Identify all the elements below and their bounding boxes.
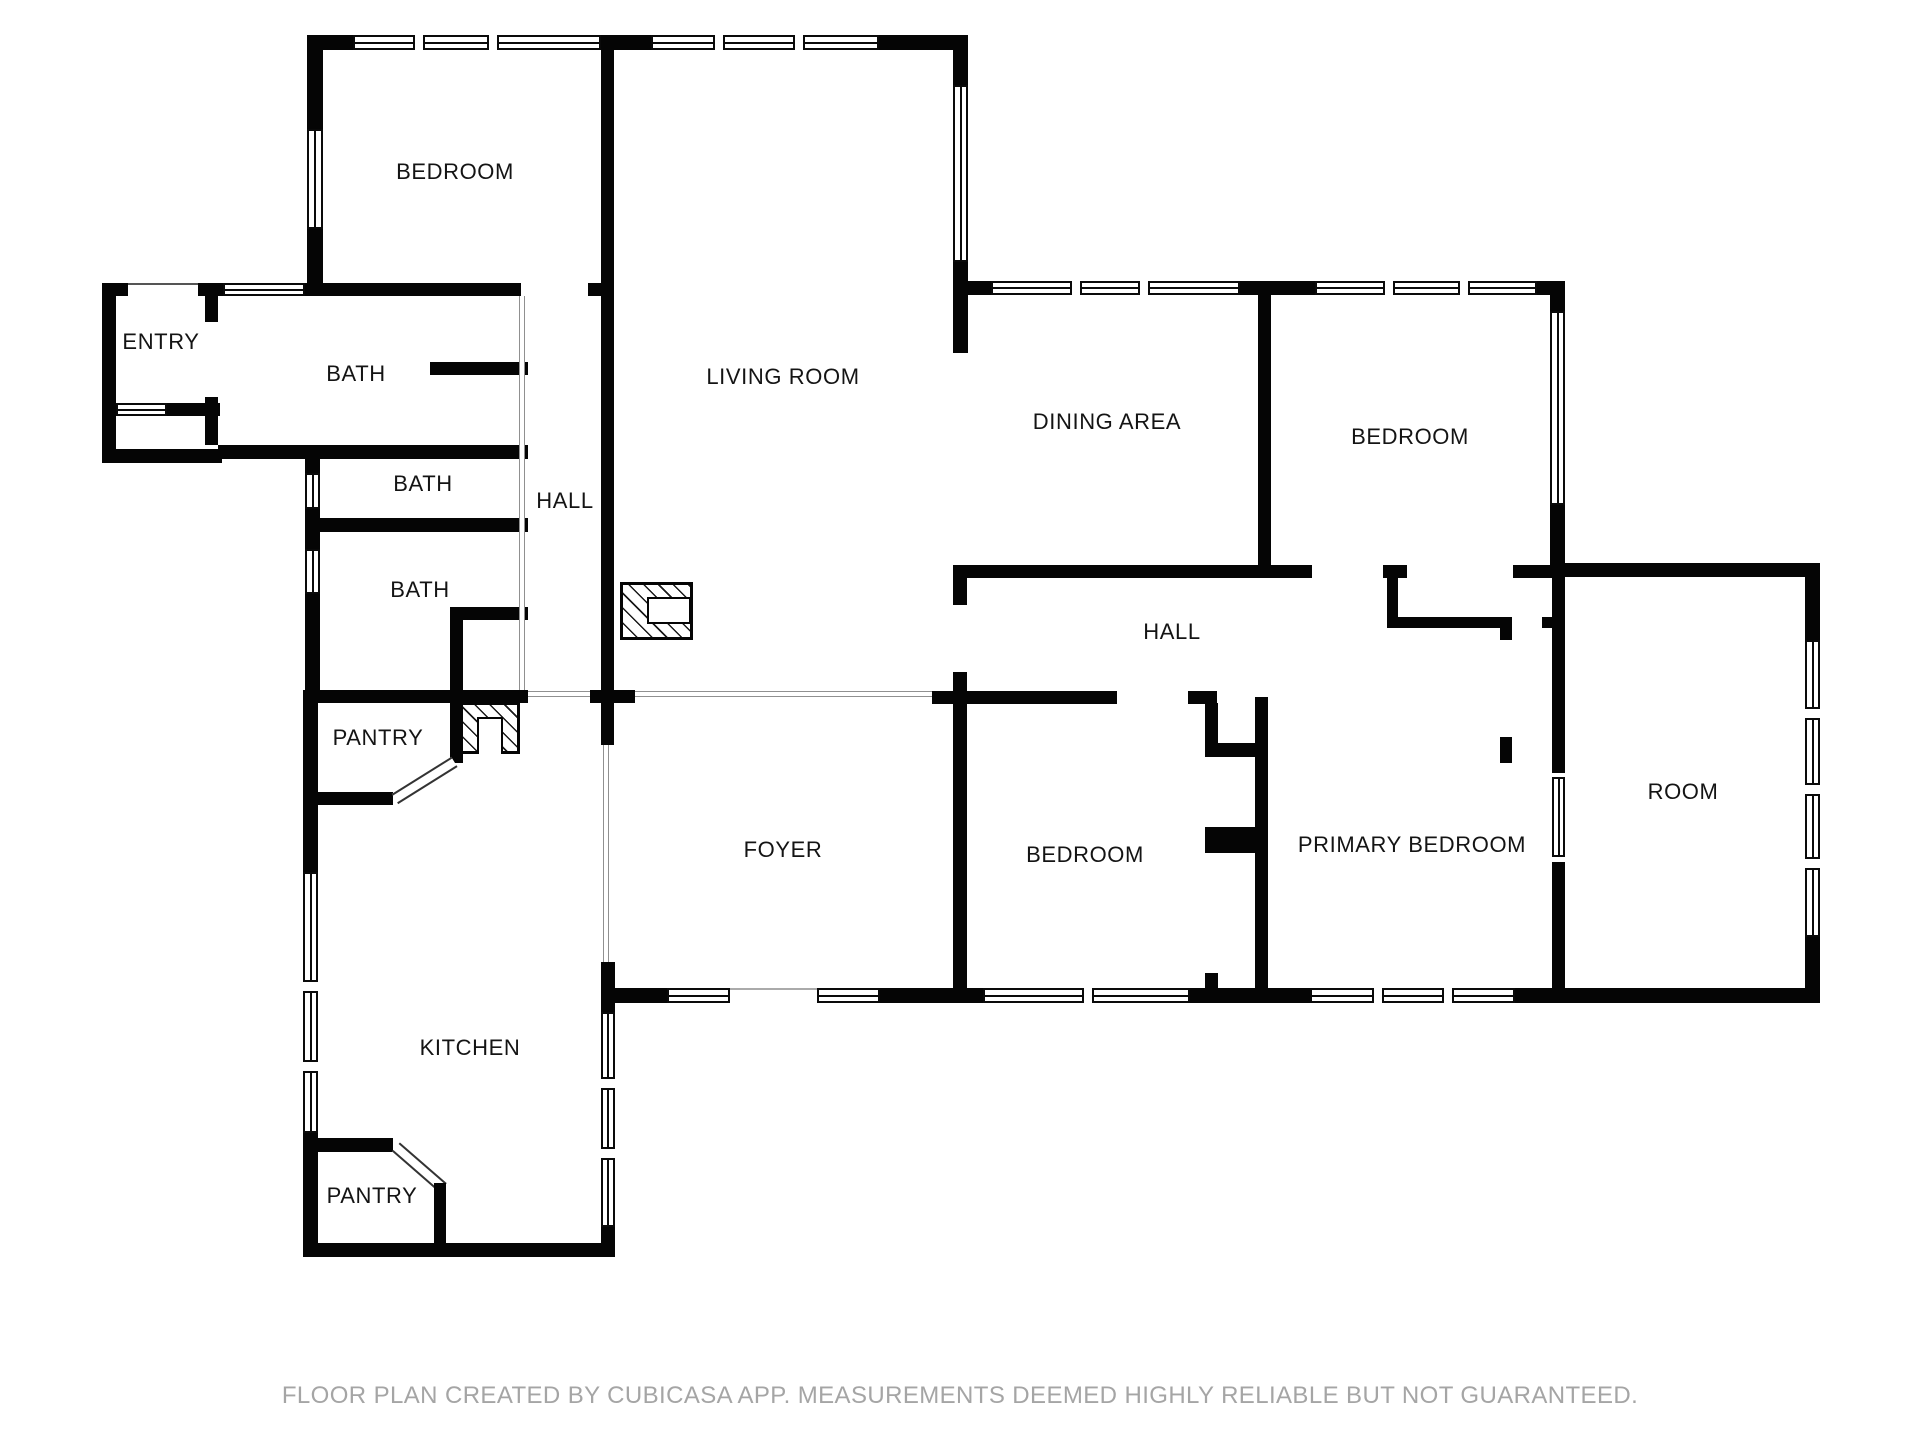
wall	[102, 449, 222, 463]
room-label-bedroom-1: BEDROOM	[396, 159, 514, 185]
window	[305, 549, 320, 594]
room-label-pantry-2: PANTRY	[327, 1183, 418, 1209]
room-label-bath-2: BATH	[393, 471, 452, 497]
room-label-pantry-1: PANTRY	[333, 725, 424, 751]
footer-disclaimer: FLOOR PLAN CREATED BY CUBICASA APP. MEAS…	[282, 1382, 1638, 1410]
wall	[303, 1133, 318, 1257]
wall	[601, 962, 615, 1012]
wall	[305, 594, 320, 703]
wall	[1542, 617, 1552, 628]
room-label-bath-3: BATH	[390, 577, 449, 603]
room-label-dining-area: DINING AREA	[1033, 409, 1181, 435]
wall	[307, 35, 353, 50]
window	[353, 35, 601, 50]
window	[651, 35, 879, 50]
window-mullion	[1805, 857, 1820, 870]
wall	[317, 792, 393, 805]
wall	[588, 283, 614, 296]
room-label-primary-bedroom: PRIMARY BEDROOM	[1298, 832, 1526, 858]
window	[116, 403, 167, 416]
room-label-kitchen: KITCHEN	[420, 1035, 521, 1061]
wall	[1258, 281, 1271, 568]
window-mullion	[601, 1147, 615, 1160]
wall	[953, 565, 1312, 578]
window	[1315, 281, 1537, 295]
window-mullion	[1070, 281, 1082, 295]
wall	[1255, 697, 1268, 1003]
room-label-hall-1: HALL	[536, 488, 593, 514]
wall	[198, 283, 223, 296]
wall	[317, 1138, 393, 1152]
window-mullion	[303, 1060, 318, 1073]
window-mullion	[1372, 988, 1384, 1003]
window	[303, 872, 318, 1133]
window	[1310, 988, 1515, 1003]
wall	[1387, 575, 1398, 628]
window	[1550, 311, 1565, 505]
door-opening	[730, 988, 817, 1003]
wall	[1805, 563, 1820, 640]
window-mullion	[303, 980, 318, 993]
window-mullion	[1082, 988, 1094, 1003]
window	[305, 473, 320, 509]
window	[667, 988, 730, 1003]
window-mullion	[601, 1077, 615, 1090]
wall	[305, 459, 320, 473]
wall	[953, 262, 968, 353]
window	[953, 85, 968, 262]
wall	[1500, 628, 1512, 640]
wall	[1515, 988, 1820, 1003]
door-opening	[128, 283, 198, 296]
room-label-bedroom-3: BEDROOM	[1026, 842, 1144, 868]
door-opening	[528, 691, 590, 697]
wall	[953, 281, 991, 295]
wall	[1190, 988, 1310, 1003]
window-mullion	[713, 35, 725, 50]
wall	[102, 283, 116, 463]
wall	[615, 988, 667, 1003]
room-label-living-room: LIVING ROOM	[706, 364, 859, 390]
open-boundary	[635, 691, 932, 697]
fireplace-notch	[647, 597, 691, 624]
wall	[953, 565, 967, 605]
room-label-bedroom-2: BEDROOM	[1351, 424, 1469, 450]
wall	[880, 988, 983, 1003]
window-mullion	[487, 35, 499, 50]
window	[817, 988, 880, 1003]
window-mullion	[1383, 281, 1395, 295]
wall	[1552, 563, 1818, 577]
wall	[305, 283, 521, 296]
wall	[1500, 737, 1512, 763]
wall	[305, 509, 320, 549]
window	[1552, 777, 1565, 857]
wall	[601, 35, 614, 745]
open-boundary	[519, 296, 525, 690]
window-mullion	[1442, 988, 1454, 1003]
wall	[1552, 563, 1565, 773]
wall	[430, 362, 528, 375]
wall	[1240, 281, 1315, 295]
window-mullion	[1458, 281, 1470, 295]
room-label-bath-1: BATH	[326, 361, 385, 387]
room-label-room: ROOM	[1648, 779, 1719, 805]
wall	[953, 35, 968, 85]
wall	[1398, 617, 1512, 628]
window-mullion	[1805, 783, 1820, 796]
wall	[1205, 973, 1218, 988]
water-heater-notch	[477, 717, 503, 754]
window	[307, 129, 323, 229]
wall	[305, 518, 528, 532]
wall	[953, 672, 967, 1003]
wall	[932, 691, 1117, 704]
wall	[590, 690, 635, 703]
wall	[1550, 281, 1565, 311]
window-mullion	[413, 35, 425, 50]
wall	[303, 1243, 615, 1257]
window	[223, 283, 305, 296]
room-label-entry: ENTRY	[122, 329, 199, 355]
window	[991, 281, 1240, 295]
wall	[303, 690, 318, 872]
wall	[1552, 862, 1565, 1003]
wall	[167, 403, 220, 416]
fireplace-icon	[620, 582, 693, 640]
room-label-foyer: FOYER	[744, 837, 823, 863]
window	[601, 1012, 615, 1227]
window-mullion	[793, 35, 805, 50]
room-label-hall-2: HALL	[1143, 619, 1200, 645]
open-boundary	[603, 745, 609, 962]
water-heater-icon	[460, 702, 520, 754]
floor-plan: BEDROOM ENTRY BATH BATH HALL BATH LIVING…	[0, 0, 1920, 1440]
wall	[205, 296, 218, 322]
window-mullion	[1138, 281, 1150, 295]
wall	[218, 445, 528, 459]
door-opening-angled	[392, 757, 458, 804]
window-mullion	[1805, 707, 1820, 720]
